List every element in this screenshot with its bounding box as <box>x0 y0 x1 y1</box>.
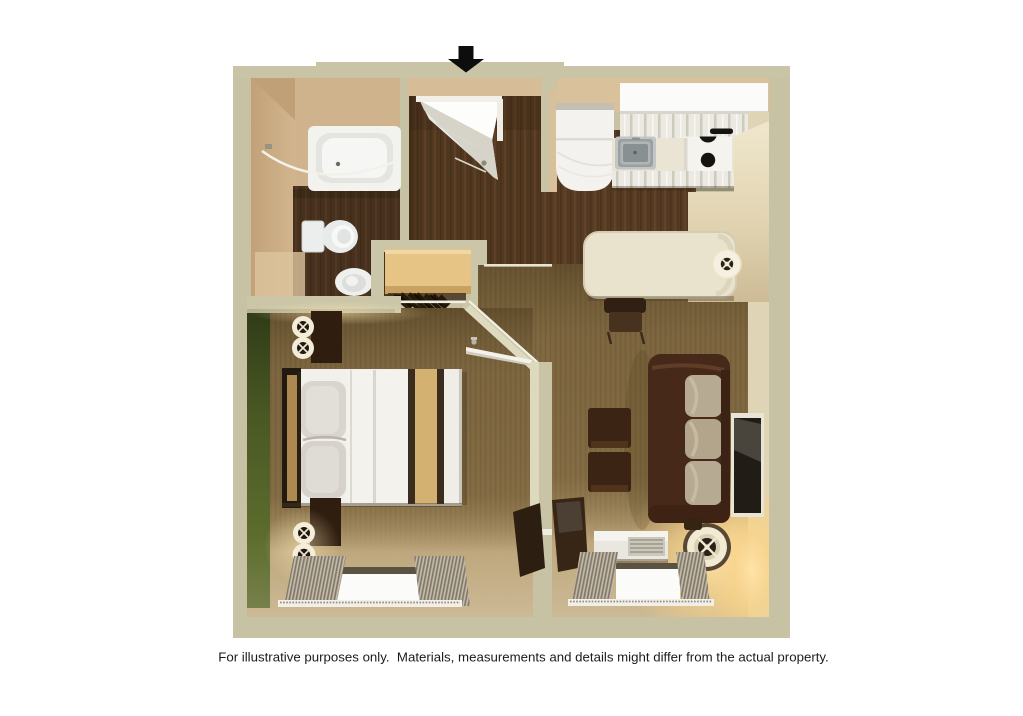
svg-text:For illustrative purposes only: For illustrative purposes only. Material… <box>218 650 829 665</box>
